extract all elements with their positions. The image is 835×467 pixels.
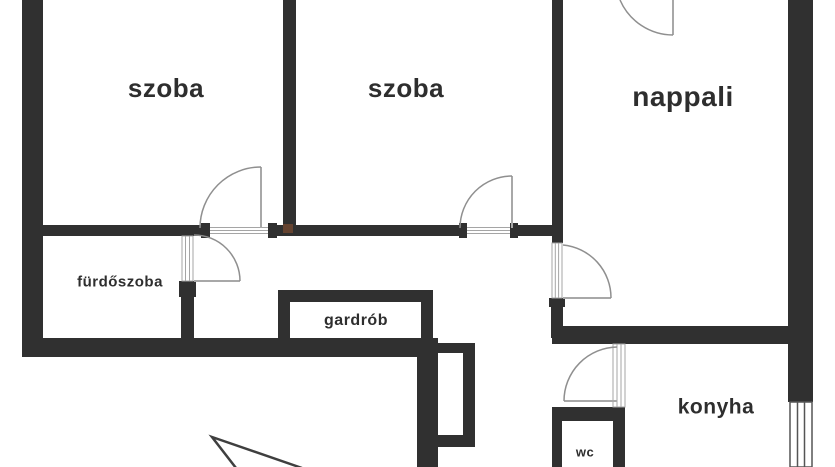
door-threshold-szoba-2 xyxy=(467,225,510,236)
door-frame-bathroom xyxy=(182,236,193,281)
wall-gardrob-left xyxy=(278,302,290,338)
door-arc-szoba-2 xyxy=(460,176,512,228)
entrance-arrow-icon xyxy=(212,437,302,467)
wall-gardrob-top xyxy=(278,290,433,302)
window-konyha xyxy=(788,397,813,467)
door-arc-bathroom xyxy=(194,235,240,281)
wall-wc-right xyxy=(613,421,625,467)
floor-plan: szoba szoba nappali fürdőszoba gardrób k… xyxy=(0,0,835,467)
wall-divider-szoba1-szoba2 xyxy=(283,0,296,236)
room-label-wc: wc xyxy=(576,446,594,459)
shaft-interior xyxy=(438,353,463,435)
wall-hall-a xyxy=(43,225,201,236)
wall-hall-b xyxy=(277,225,459,236)
room-label-szoba-2: szoba xyxy=(368,75,444,101)
wall-entry-left xyxy=(417,338,438,467)
wall-divider-szoba2-nappali xyxy=(552,0,563,243)
door-frame-konyha xyxy=(613,344,625,407)
wall-nappali-konyha xyxy=(552,326,813,344)
room-label-nappali: nappali xyxy=(632,83,734,111)
frame xyxy=(613,344,625,407)
door-arc-nappali xyxy=(563,245,611,298)
wall-bottom xyxy=(22,338,437,357)
door-threshold-szoba-1 xyxy=(210,225,268,236)
window-body xyxy=(790,402,812,467)
door-arc-szoba-1 xyxy=(200,167,261,228)
wall-wc-top xyxy=(552,407,625,421)
room-label-furdoszoba: fürdőszoba xyxy=(77,275,163,290)
door-frame-nappali xyxy=(552,243,562,298)
wall-gardrob-right xyxy=(421,302,433,338)
room-label-gardrob: gardrób xyxy=(324,313,388,329)
room-label-konyha: konyha xyxy=(678,397,755,418)
wall-outer-left xyxy=(22,0,43,357)
door-arc-nappali-top xyxy=(620,0,673,35)
junction-mark xyxy=(283,224,293,233)
frame xyxy=(182,236,193,281)
wall-bathroom-right xyxy=(181,281,194,338)
door-arc-konyha xyxy=(564,347,617,401)
frame xyxy=(552,243,562,298)
room-label-szoba-1: szoba xyxy=(128,75,204,101)
wall-hall-c xyxy=(518,225,552,236)
wall-wc-left xyxy=(552,421,562,467)
door-jamb xyxy=(268,223,277,238)
